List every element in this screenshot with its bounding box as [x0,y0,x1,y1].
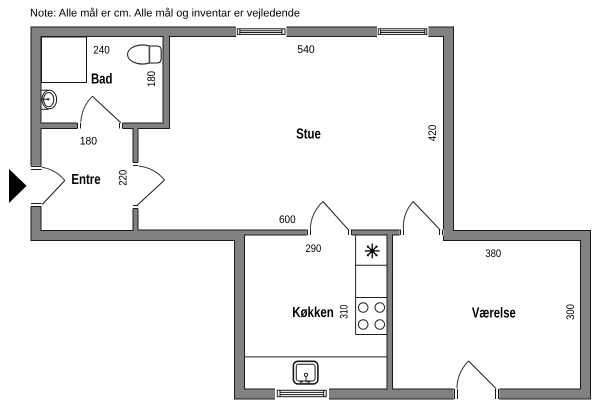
svg-text:420: 420 [427,125,439,142]
svg-text:Bad: Bad [91,72,113,88]
svg-text:Stue: Stue [296,127,321,143]
svg-text:Entre: Entre [71,172,100,188]
svg-text:380: 380 [485,248,501,260]
svg-text:600: 600 [279,214,296,226]
svg-text:310: 310 [339,305,351,319]
svg-text:290: 290 [306,243,322,255]
svg-text:180: 180 [146,71,158,87]
svg-text:Køkken: Køkken [292,305,334,321]
svg-text:540: 540 [297,44,315,56]
svg-text:Note: Alle mål er cm. Alle mål: Note: Alle mål er cm. Alle mål og invent… [30,7,300,19]
svg-text:300: 300 [565,304,577,320]
svg-text:240: 240 [93,44,110,56]
svg-text:220: 220 [117,170,129,186]
svg-text:Værelse: Værelse [472,305,516,321]
svg-text:180: 180 [80,136,97,148]
